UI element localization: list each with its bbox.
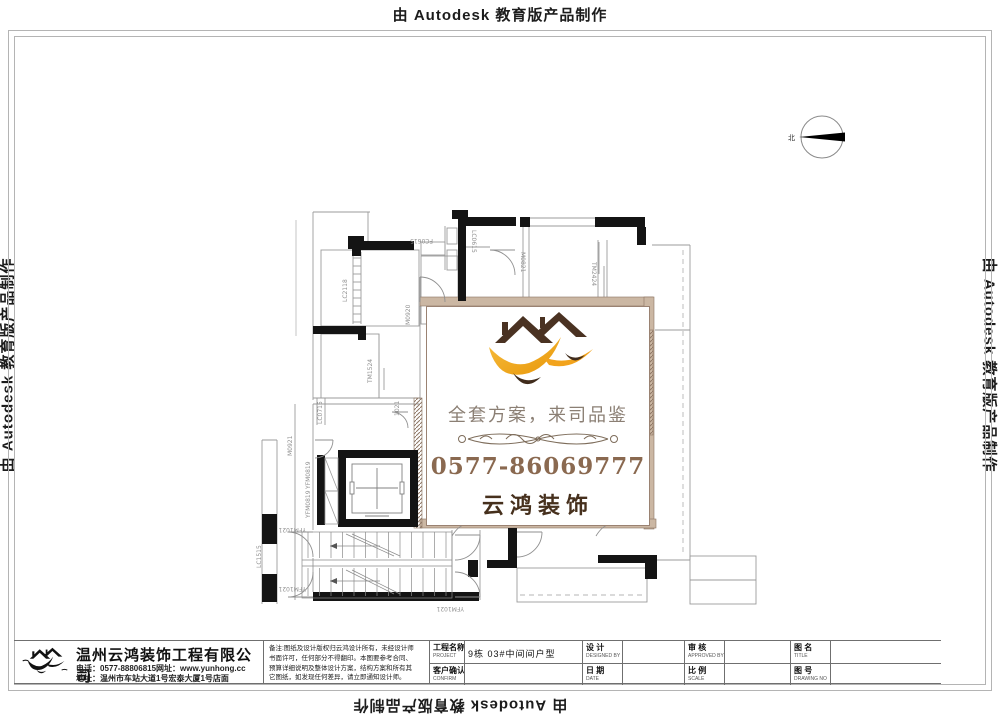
company-address-line: 地址：温州市车站大道1号宏泰大厦1号店面 [76,673,229,684]
field-date-value [622,663,684,685]
field-project-value: 9栋 03#中间间户型 [464,641,582,663]
plan-label: LC0615 [470,230,477,253]
field-drawingno-label: 图 号 DRAWING NO [790,663,830,685]
plan-label: YFM1021 [436,605,465,612]
card-brand-name: 云鸿装饰 [482,488,594,520]
plan-label: YFM1021 [278,526,307,533]
field-approve-label: 审 核 APPROVED BY [684,641,724,663]
field-drawingno-value [830,663,941,685]
title-block-company-cell: 温州云鸿装饰工程有限公司 电话：0577-88806815网址：www.yunh… [14,641,264,683]
note-line: 预算详细说明及整体设计方案，结构方案和所有其 [269,664,424,674]
field-confirm-label: 客户确认 CONFIRM [430,663,464,685]
field-approve-value [724,641,790,663]
company-logo [22,644,68,682]
plan-label: TM1524 [367,359,374,384]
title-block-grid: 工程名称 PROJECT 9栋 03#中间间户型 设 计 DESIGNED BY… [430,641,941,683]
plan-label: LC0715 [317,401,324,424]
field-date-label: 日 期 DATE [582,663,622,685]
compass-north-label: 北 [788,134,795,142]
plan-label: M0920 [405,304,412,325]
title-block: 温州云鸿装饰工程有限公司 电话：0577-88806815网址：www.yunh… [14,640,941,684]
note-line: 备注:图纸及设计版权归云鸿设计所有，未经设计师 [269,644,424,654]
plan-label: LC1515 [256,545,263,568]
plan-label: 1021 [394,401,401,416]
title-block-notes-cell: 备注:图纸及设计版权归云鸿设计所有，未经设计师 书面许可，任何部分不得翻印。本图… [264,641,430,683]
field-title-value [830,641,941,663]
plan-label: TM2424 [590,261,597,286]
field-design-value [622,641,684,663]
plan-label: LC2118 [342,279,349,302]
plan-label: FC0615 [410,237,433,244]
plan-label: YFM0819 [305,490,312,519]
field-confirm-value [464,663,582,685]
yunhong-logo [473,307,603,399]
plan-label: M0821 [519,252,526,273]
plan-label: M0921 [287,435,294,456]
staircase-group [302,532,452,598]
drawing-sheet: 由 Autodesk 教育版产品制作 由 Autodesk 教育版产品制作 由 … [0,0,1000,719]
card-phone-number: 0577-86069777 [431,453,646,480]
field-project-label: 工程名称 PROJECT [430,641,464,663]
note-line: 书面许可，任何部分不得翻印。本图要参考合同、 [269,654,424,664]
north-compass-icon: 北 [788,116,845,158]
plan-label: YFM1021 [278,585,307,592]
plan-label: YFM0819 [305,461,312,490]
note-line: 它图纸，如发现任何差异，请立即通知设计师。 [269,673,424,683]
ornament-flourish [446,427,630,451]
field-scale-label: 比 例 SCALE [684,663,724,685]
elevator-group [325,450,418,527]
field-title-label: 图 名 TITLE [790,641,830,663]
card-slogan: 全套方案，来司品鉴 [448,401,628,427]
field-scale-value [724,663,790,685]
field-design-label: 设 计 DESIGNED BY [582,641,622,663]
brand-watermark-card: 全套方案，来司品鉴 0577-86069777 云鸿装饰 [426,306,650,526]
